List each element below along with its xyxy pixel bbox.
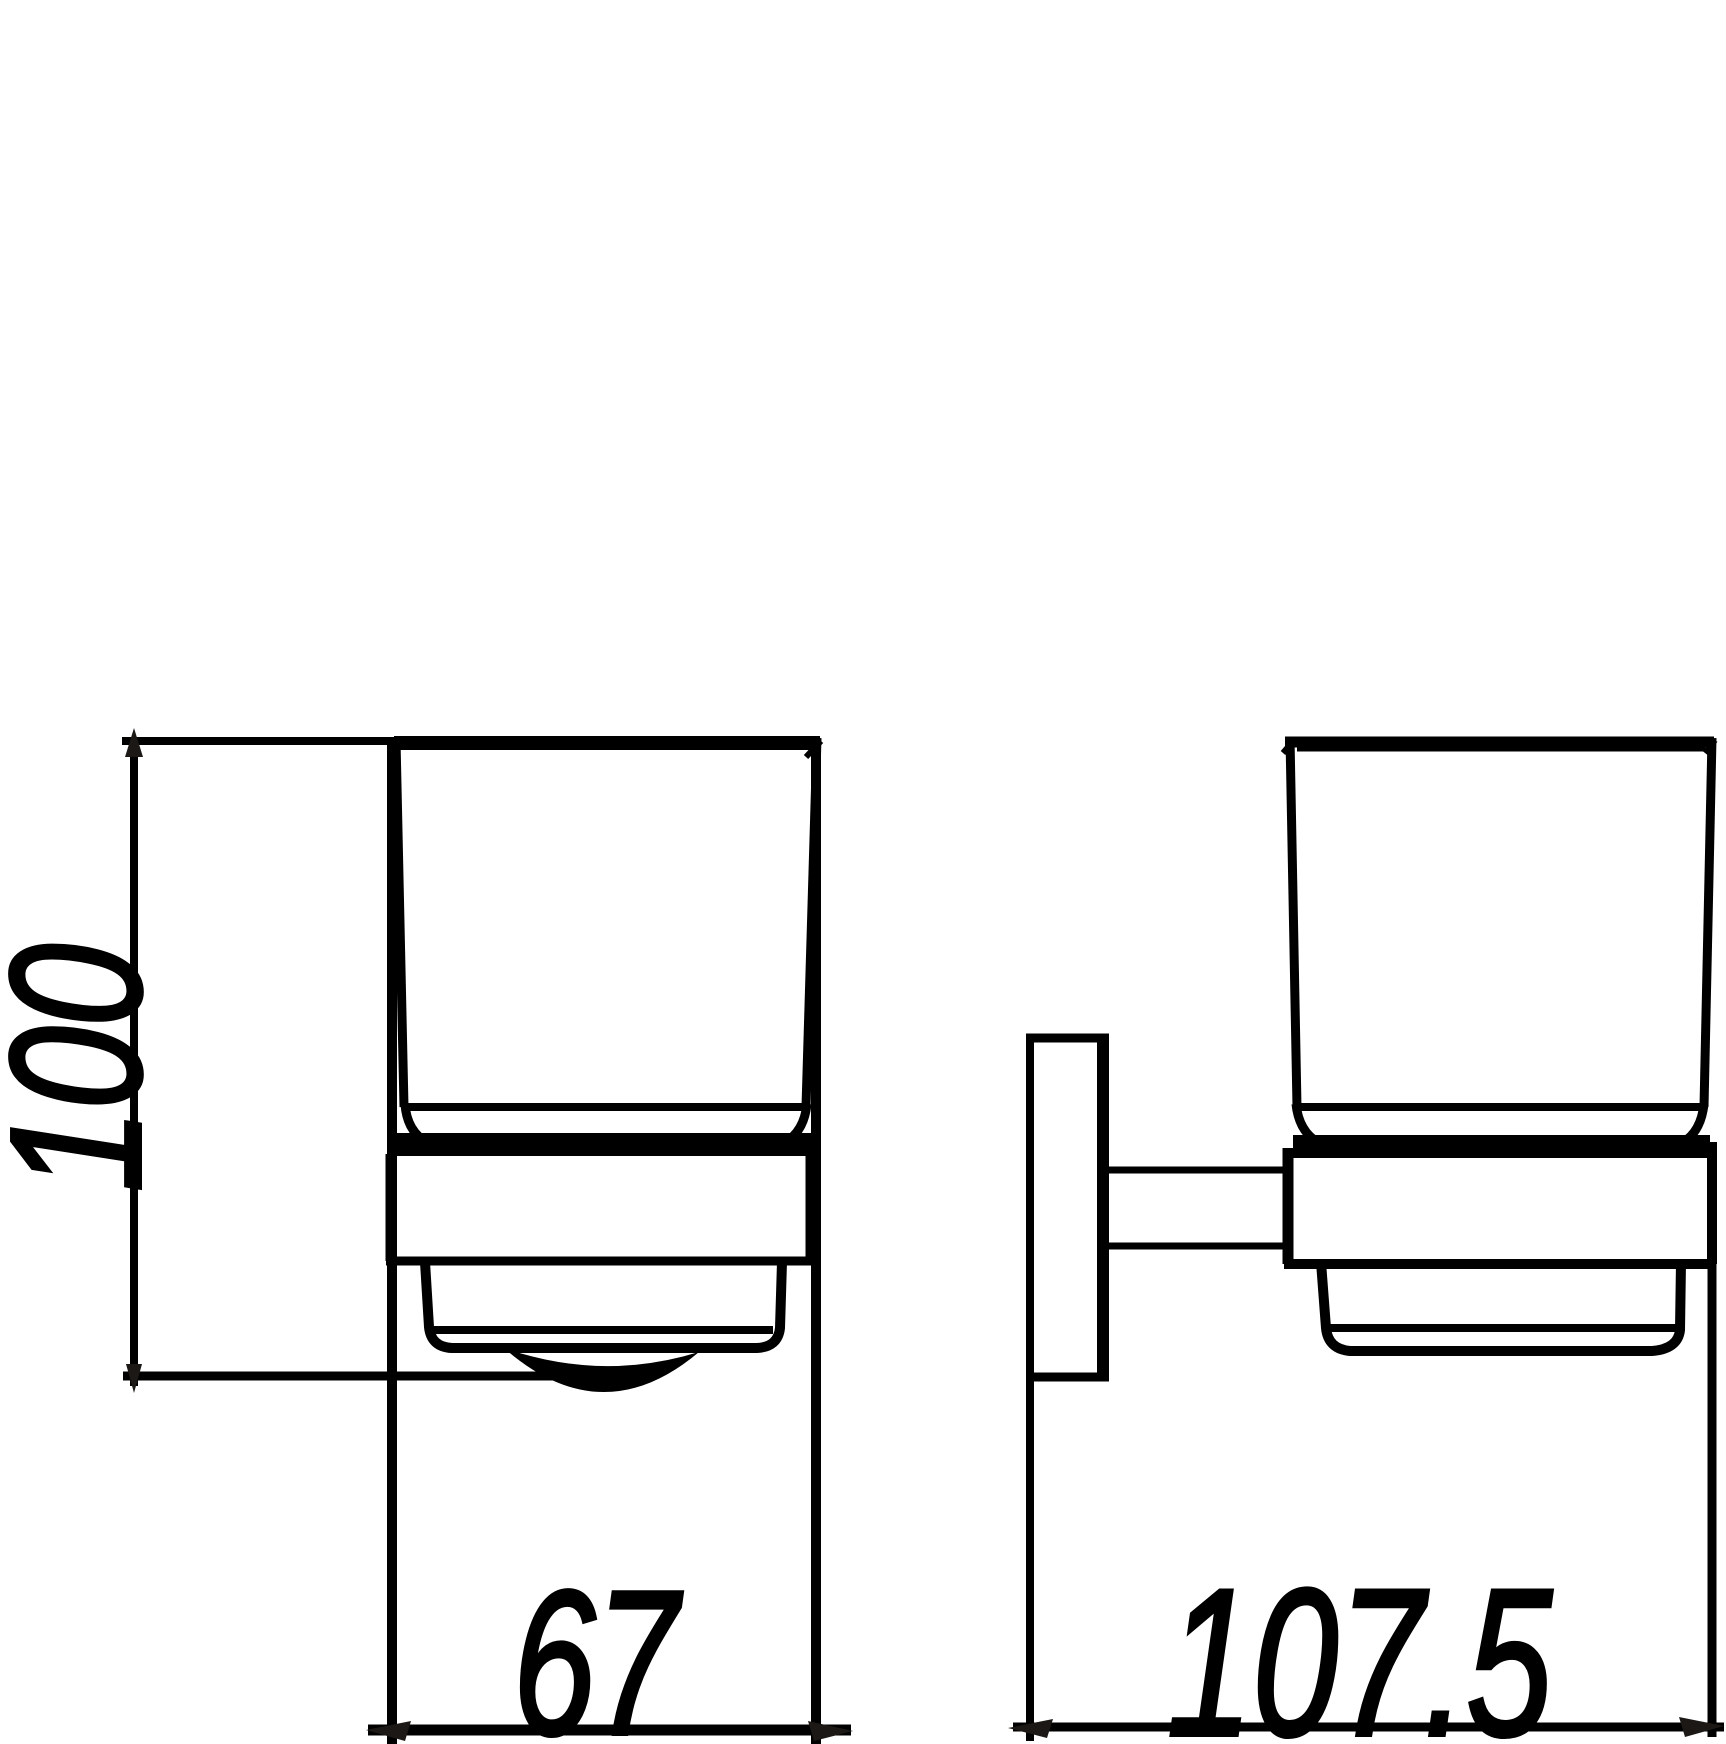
svg-text:107.5: 107.5 [1167, 1545, 1553, 1744]
svg-text:67: 67 [513, 1548, 683, 1744]
svg-text:100: 100 [0, 944, 180, 1192]
